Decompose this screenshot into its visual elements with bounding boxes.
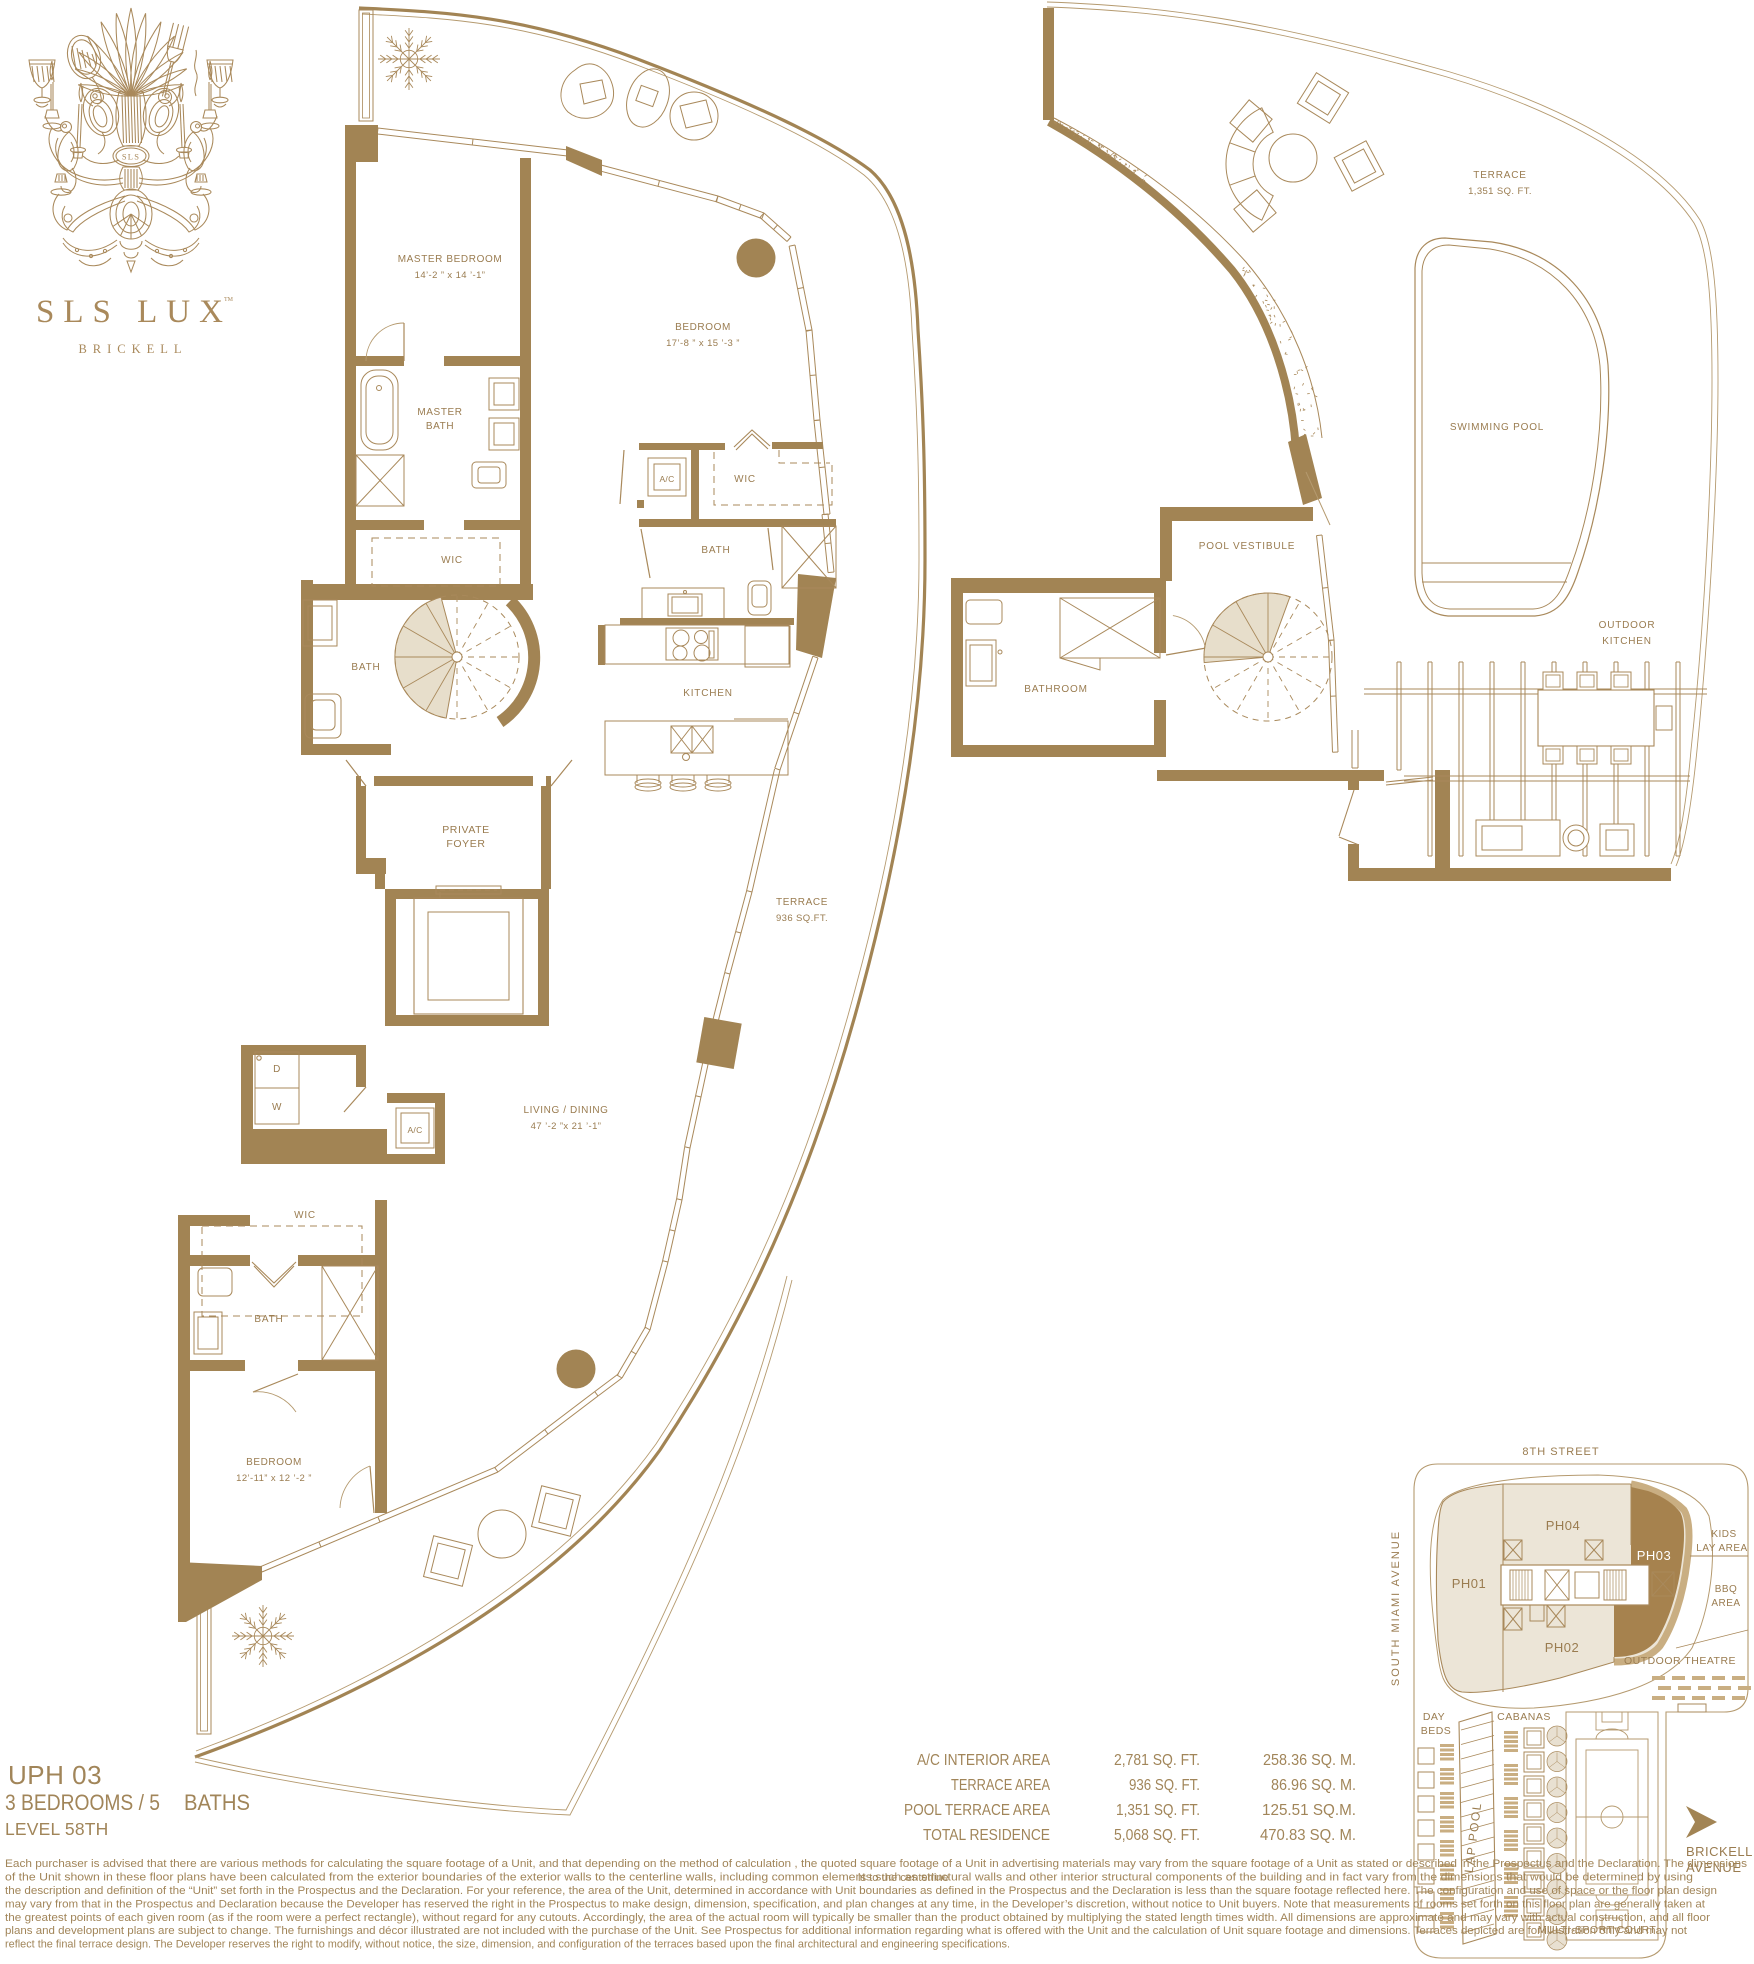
- svg-text:may vary from that in the Pros: may vary from that in the Prospectus and…: [5, 1898, 1706, 1910]
- svg-text:12’-11” x 12 ’-2 ”: 12’-11” x 12 ’-2 ”: [236, 1473, 312, 1484]
- svg-text:BRICKELL: BRICKELL: [1686, 1844, 1753, 1859]
- svg-text:PH01: PH01: [1452, 1576, 1487, 1591]
- svg-text:17’-8 ” x 15 ’-3 ”: 17’-8 ” x 15 ’-3 ”: [666, 338, 740, 349]
- svg-text:5,068 SQ. FT.: 5,068 SQ. FT.: [1114, 1827, 1200, 1844]
- svg-text:125.51 SQ.M.: 125.51 SQ.M.: [1262, 1802, 1356, 1819]
- svg-text:2,781 SQ. FT.: 2,781 SQ. FT.: [1114, 1752, 1200, 1769]
- svg-text:936 SQ. FT.: 936 SQ. FT.: [1129, 1777, 1200, 1794]
- svg-text:LIVING / DINING: LIVING / DINING: [523, 1105, 608, 1116]
- svg-text:Each purchaser is advised that: Each purchaser is advised that there are…: [5, 1858, 1747, 1870]
- svg-text:3 BEDROOMS / 5: 3 BEDROOMS / 5: [5, 1790, 160, 1815]
- svg-text:936 SQ.FT.: 936 SQ.FT.: [776, 913, 828, 924]
- svg-text:PH02: PH02: [1545, 1640, 1580, 1655]
- svg-text:DAY: DAY: [1423, 1711, 1445, 1723]
- svg-text:BBQ: BBQ: [1715, 1584, 1738, 1595]
- svg-text:D: D: [273, 1064, 281, 1075]
- svg-text:A/C INTERIOR AREA: A/C INTERIOR AREA: [917, 1752, 1051, 1769]
- svg-text:reflect the final terrace desi: reflect the final terrace design. The De…: [5, 1939, 1010, 1951]
- svg-text:WIC: WIC: [294, 1210, 316, 1221]
- svg-text:SWIMMING POOL: SWIMMING POOL: [1450, 422, 1544, 433]
- svg-text:SLS LUX: SLS LUX: [36, 294, 232, 330]
- svg-text:OUTDOOR THEATRE: OUTDOOR THEATRE: [1624, 1655, 1736, 1667]
- svg-text:470.83 SQ. M.: 470.83 SQ. M.: [1260, 1827, 1356, 1844]
- svg-text:PH03: PH03: [1637, 1548, 1672, 1563]
- svg-text:BEDROOM: BEDROOM: [675, 322, 731, 333]
- svg-text:BATH: BATH: [701, 545, 730, 556]
- svg-text:KITCHEN: KITCHEN: [1602, 636, 1652, 647]
- svg-text:BEDS: BEDS: [1421, 1725, 1452, 1737]
- svg-text:SLS: SLS: [122, 152, 140, 162]
- svg-text:FOYER: FOYER: [446, 838, 485, 850]
- svg-text:8TH STREET: 8TH STREET: [1522, 1446, 1599, 1458]
- svg-text:TERRACE: TERRACE: [776, 897, 828, 908]
- svg-text:of the Unit shown in these flo: of the Unit shown in these floor plans h…: [5, 1872, 1693, 1884]
- svg-text:BRICKELL: BRICKELL: [78, 342, 187, 356]
- svg-text:W: W: [272, 1102, 282, 1113]
- svg-text:WIC: WIC: [441, 555, 463, 566]
- svg-text:TERRACE AREA: TERRACE AREA: [951, 1777, 1051, 1794]
- svg-text:MASTER BEDROOM: MASTER BEDROOM: [398, 254, 503, 265]
- svg-text:POOL TERRACE AREA: POOL TERRACE AREA: [904, 1802, 1051, 1819]
- svg-text:the greatest points of each gi: the greatest points of each given room (…: [5, 1912, 1710, 1924]
- svg-text:the description and definition: the description and definition of the “U…: [5, 1885, 1717, 1897]
- svg-text:AREA: AREA: [1711, 1598, 1740, 1609]
- svg-text:KIDS: KIDS: [1711, 1529, 1736, 1540]
- svg-text:47 ’-2 ”x 21 ’-1”: 47 ’-2 ”x 21 ’-1”: [531, 1121, 602, 1132]
- svg-text:86.96 SQ. M.: 86.96 SQ. M.: [1271, 1777, 1356, 1794]
- svg-text:LEVEL 58TH: LEVEL 58TH: [5, 1819, 109, 1839]
- svg-text:BATHROOM: BATHROOM: [1024, 684, 1087, 695]
- svg-text:1,351 SQ. FT.: 1,351 SQ. FT.: [1468, 186, 1532, 197]
- svg-text:UPH 03: UPH 03: [8, 1760, 102, 1790]
- svg-text:BATH: BATH: [254, 1314, 283, 1325]
- svg-text:OUTDOOR: OUTDOOR: [1599, 620, 1656, 631]
- svg-text:plans and development plans ar: plans and development plans are subject …: [5, 1925, 1688, 1937]
- svg-text:BEDROOM: BEDROOM: [246, 1457, 302, 1468]
- svg-text:A/C: A/C: [407, 1125, 422, 1135]
- svg-text:PH04: PH04: [1546, 1518, 1581, 1533]
- svg-text:WIC: WIC: [734, 474, 756, 485]
- svg-text:POOL VESTIBULE: POOL VESTIBULE: [1199, 541, 1295, 552]
- svg-text:1,351 SQ. FT.: 1,351 SQ. FT.: [1116, 1802, 1200, 1819]
- svg-text:BATHS: BATHS: [184, 1790, 250, 1815]
- svg-text:A/C: A/C: [659, 474, 674, 484]
- svg-text:KITCHEN: KITCHEN: [683, 688, 733, 699]
- svg-text:BATH: BATH: [426, 421, 454, 432]
- svg-text:MASTER: MASTER: [417, 407, 462, 418]
- svg-text:14’-2 ” x 14 ’-1”: 14’-2 ” x 14 ’-1”: [415, 270, 486, 281]
- svg-text:LAY AREA: LAY AREA: [1696, 1543, 1747, 1554]
- svg-text:TM: TM: [224, 297, 234, 303]
- svg-text:PRIVATE: PRIVATE: [442, 824, 490, 836]
- svg-text:SOUTH MIAMI AVENUE: SOUTH MIAMI AVENUE: [1390, 1530, 1402, 1686]
- svg-text:TOTAL RESIDENCE: TOTAL RESIDENCE: [923, 1827, 1050, 1844]
- svg-text:CABANAS: CABANAS: [1497, 1711, 1551, 1723]
- svg-text:ls to the centerline: ls to the centerline: [858, 1872, 949, 1884]
- svg-text:258.36 SQ. M.: 258.36 SQ. M.: [1263, 1752, 1356, 1769]
- svg-text:BATH: BATH: [351, 662, 380, 673]
- svg-text:TERRACE: TERRACE: [1473, 170, 1526, 181]
